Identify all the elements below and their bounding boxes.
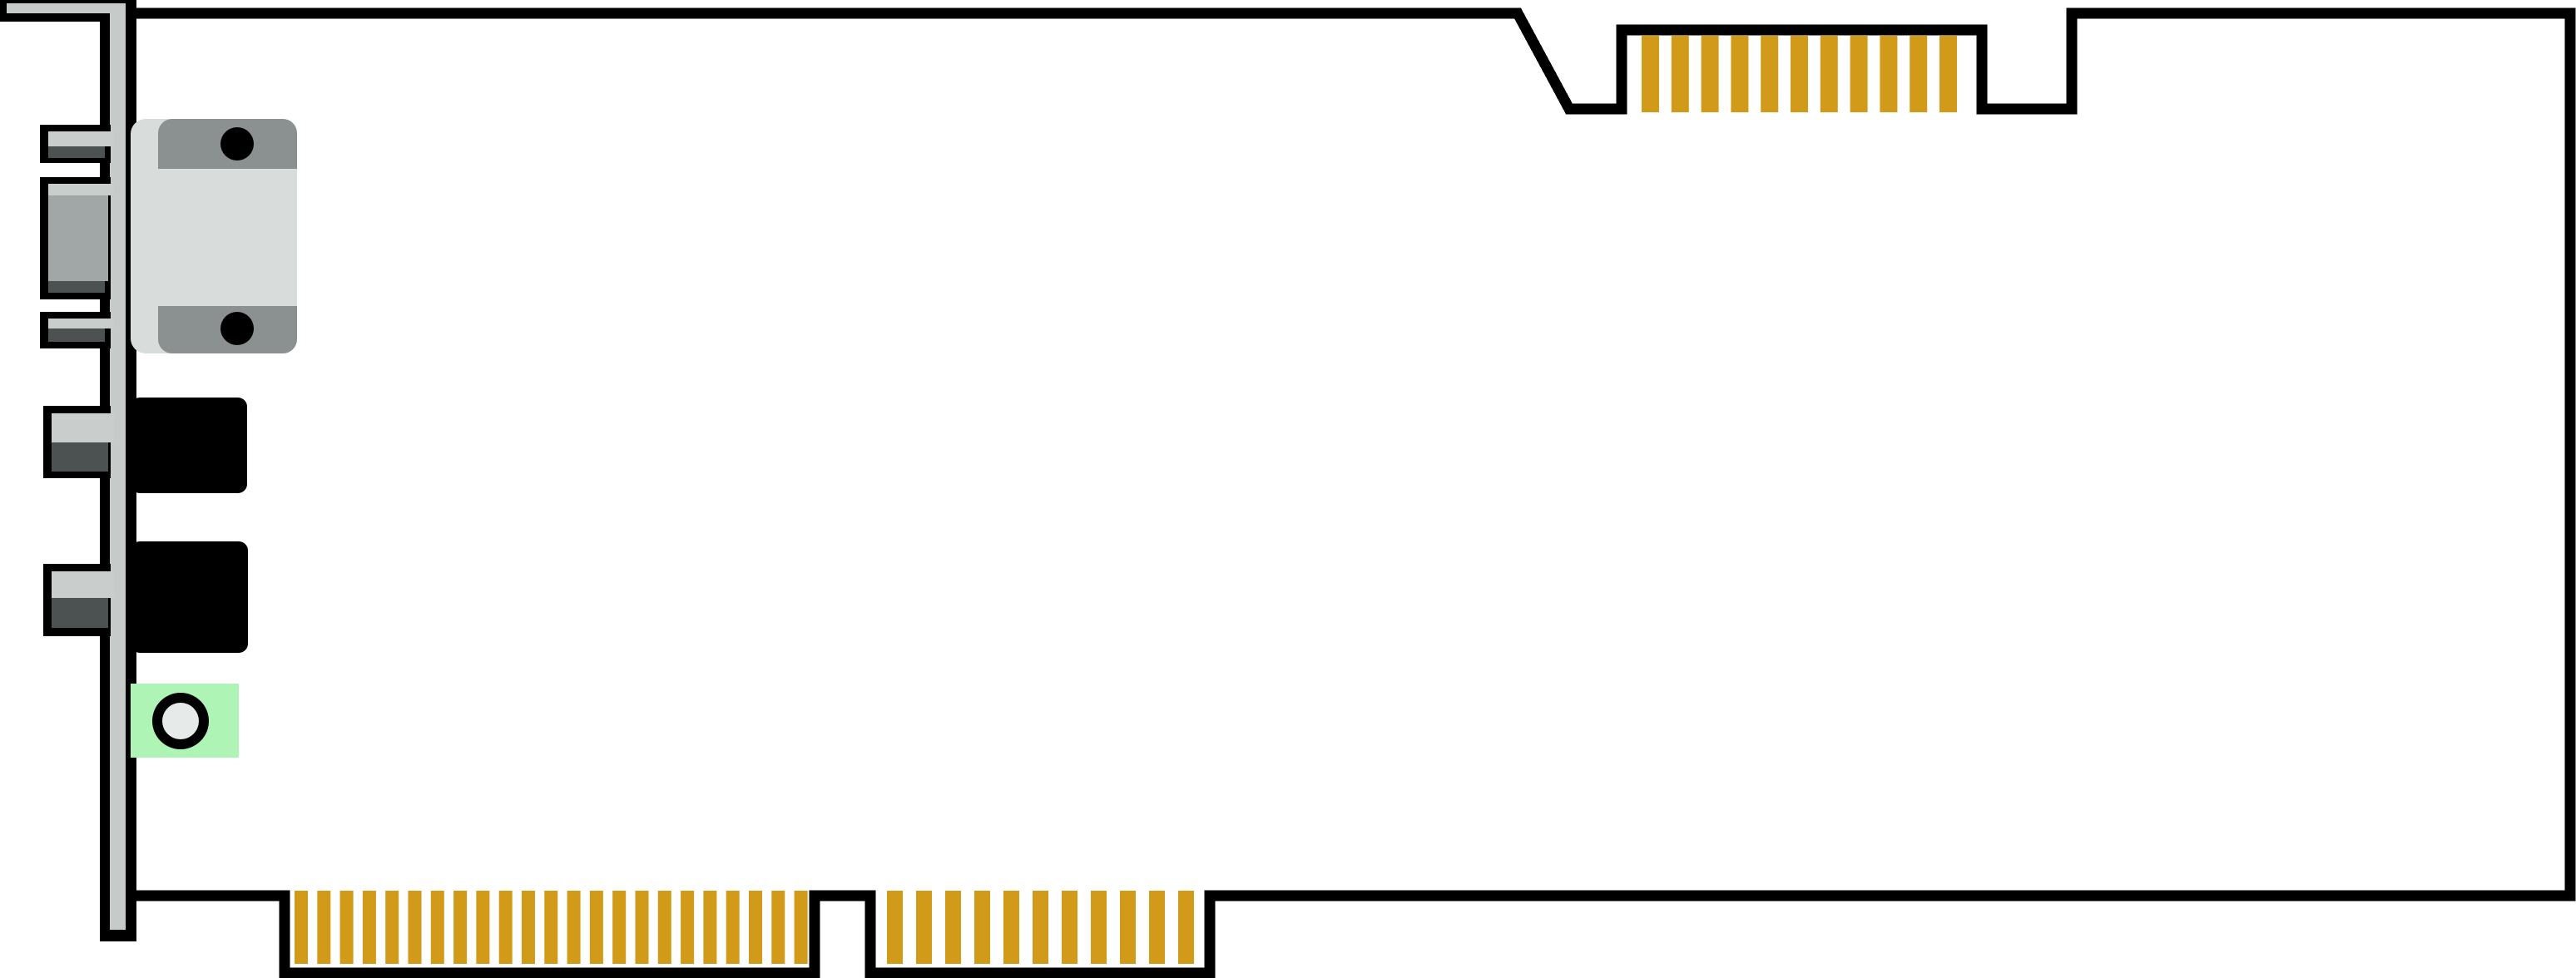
gold-pin xyxy=(636,891,649,964)
black-connector-lower xyxy=(131,541,248,653)
dsub-jackscrew-lower xyxy=(40,312,114,348)
dsub-screw-hole-bottom xyxy=(220,312,254,345)
pcb-outline xyxy=(131,13,2570,973)
bracket-top-tab xyxy=(7,3,123,13)
gold-pin xyxy=(771,891,785,964)
gold-pin xyxy=(1821,36,1838,112)
gold-pin xyxy=(887,891,903,964)
stub-face-dark xyxy=(48,281,105,293)
expansion-card-diagram xyxy=(0,0,2576,978)
gold-pin xyxy=(363,891,376,964)
stub-face-light xyxy=(52,571,114,598)
gold-pin xyxy=(1033,891,1048,964)
gold-pin xyxy=(681,891,694,964)
stub-face-dark xyxy=(48,328,105,342)
stub-face-light xyxy=(48,319,114,328)
gold-pin xyxy=(567,891,581,964)
gold-pin xyxy=(726,891,740,964)
gold-pin xyxy=(703,891,716,964)
gold-pin xyxy=(1178,891,1194,964)
dsub-jackscrew-upper xyxy=(40,125,114,163)
gold-pin xyxy=(499,891,513,964)
gold-pin xyxy=(590,891,603,964)
dsub-shell-stub xyxy=(40,177,114,299)
black-connector-upper-stub xyxy=(43,406,114,478)
stub-face-light xyxy=(52,413,114,442)
gold-pin xyxy=(1120,891,1136,964)
gold-pin xyxy=(612,891,626,964)
stub-face-dark xyxy=(48,146,105,158)
gold-pin xyxy=(476,891,489,964)
gold-pin xyxy=(916,891,932,964)
gold-pin xyxy=(1642,36,1659,112)
gold-pin xyxy=(945,891,961,964)
gold-pin xyxy=(522,891,535,964)
gold-pin xyxy=(385,891,399,964)
stub-face-dark xyxy=(52,598,108,628)
gold-pin xyxy=(1702,36,1719,112)
dsub-connector-body xyxy=(131,119,297,353)
gold-pin xyxy=(409,891,422,964)
stub-face-light xyxy=(48,131,114,146)
gold-pin xyxy=(1910,36,1927,112)
dsub-screw-hole-top xyxy=(220,127,254,161)
gold-pin xyxy=(1791,36,1808,112)
gold-pin xyxy=(658,891,671,964)
gold-pin xyxy=(1062,891,1077,964)
gold-pin xyxy=(453,891,467,964)
black-connector-lower-stub xyxy=(43,564,114,636)
gold-pin xyxy=(431,891,444,964)
gold-pin xyxy=(749,891,762,964)
gold-pin xyxy=(1672,36,1689,112)
stub-face-dark xyxy=(52,442,108,472)
gold-pin xyxy=(974,891,990,964)
led-indicator xyxy=(131,684,239,758)
gold-pin xyxy=(544,891,557,964)
gold-pin xyxy=(1149,891,1165,964)
gold-pin xyxy=(340,891,354,964)
gold-pin xyxy=(1761,36,1778,112)
gold-pin xyxy=(295,891,308,964)
gold-pin xyxy=(795,891,808,964)
stub-face-mid xyxy=(48,195,108,281)
gold-pin xyxy=(1091,891,1107,964)
gold-pin xyxy=(1939,36,1957,112)
gold-pin xyxy=(1880,36,1897,112)
gold-pin xyxy=(1731,36,1748,112)
bottom-edge-connector-left-pins xyxy=(295,891,808,964)
gold-pin xyxy=(1850,36,1868,112)
stub-face-light xyxy=(48,184,114,195)
expansion-card-figure xyxy=(0,0,2576,978)
led-lens xyxy=(162,703,199,739)
gold-pin xyxy=(317,891,330,964)
black-connector-upper xyxy=(131,398,247,493)
gold-pin xyxy=(1003,891,1019,964)
